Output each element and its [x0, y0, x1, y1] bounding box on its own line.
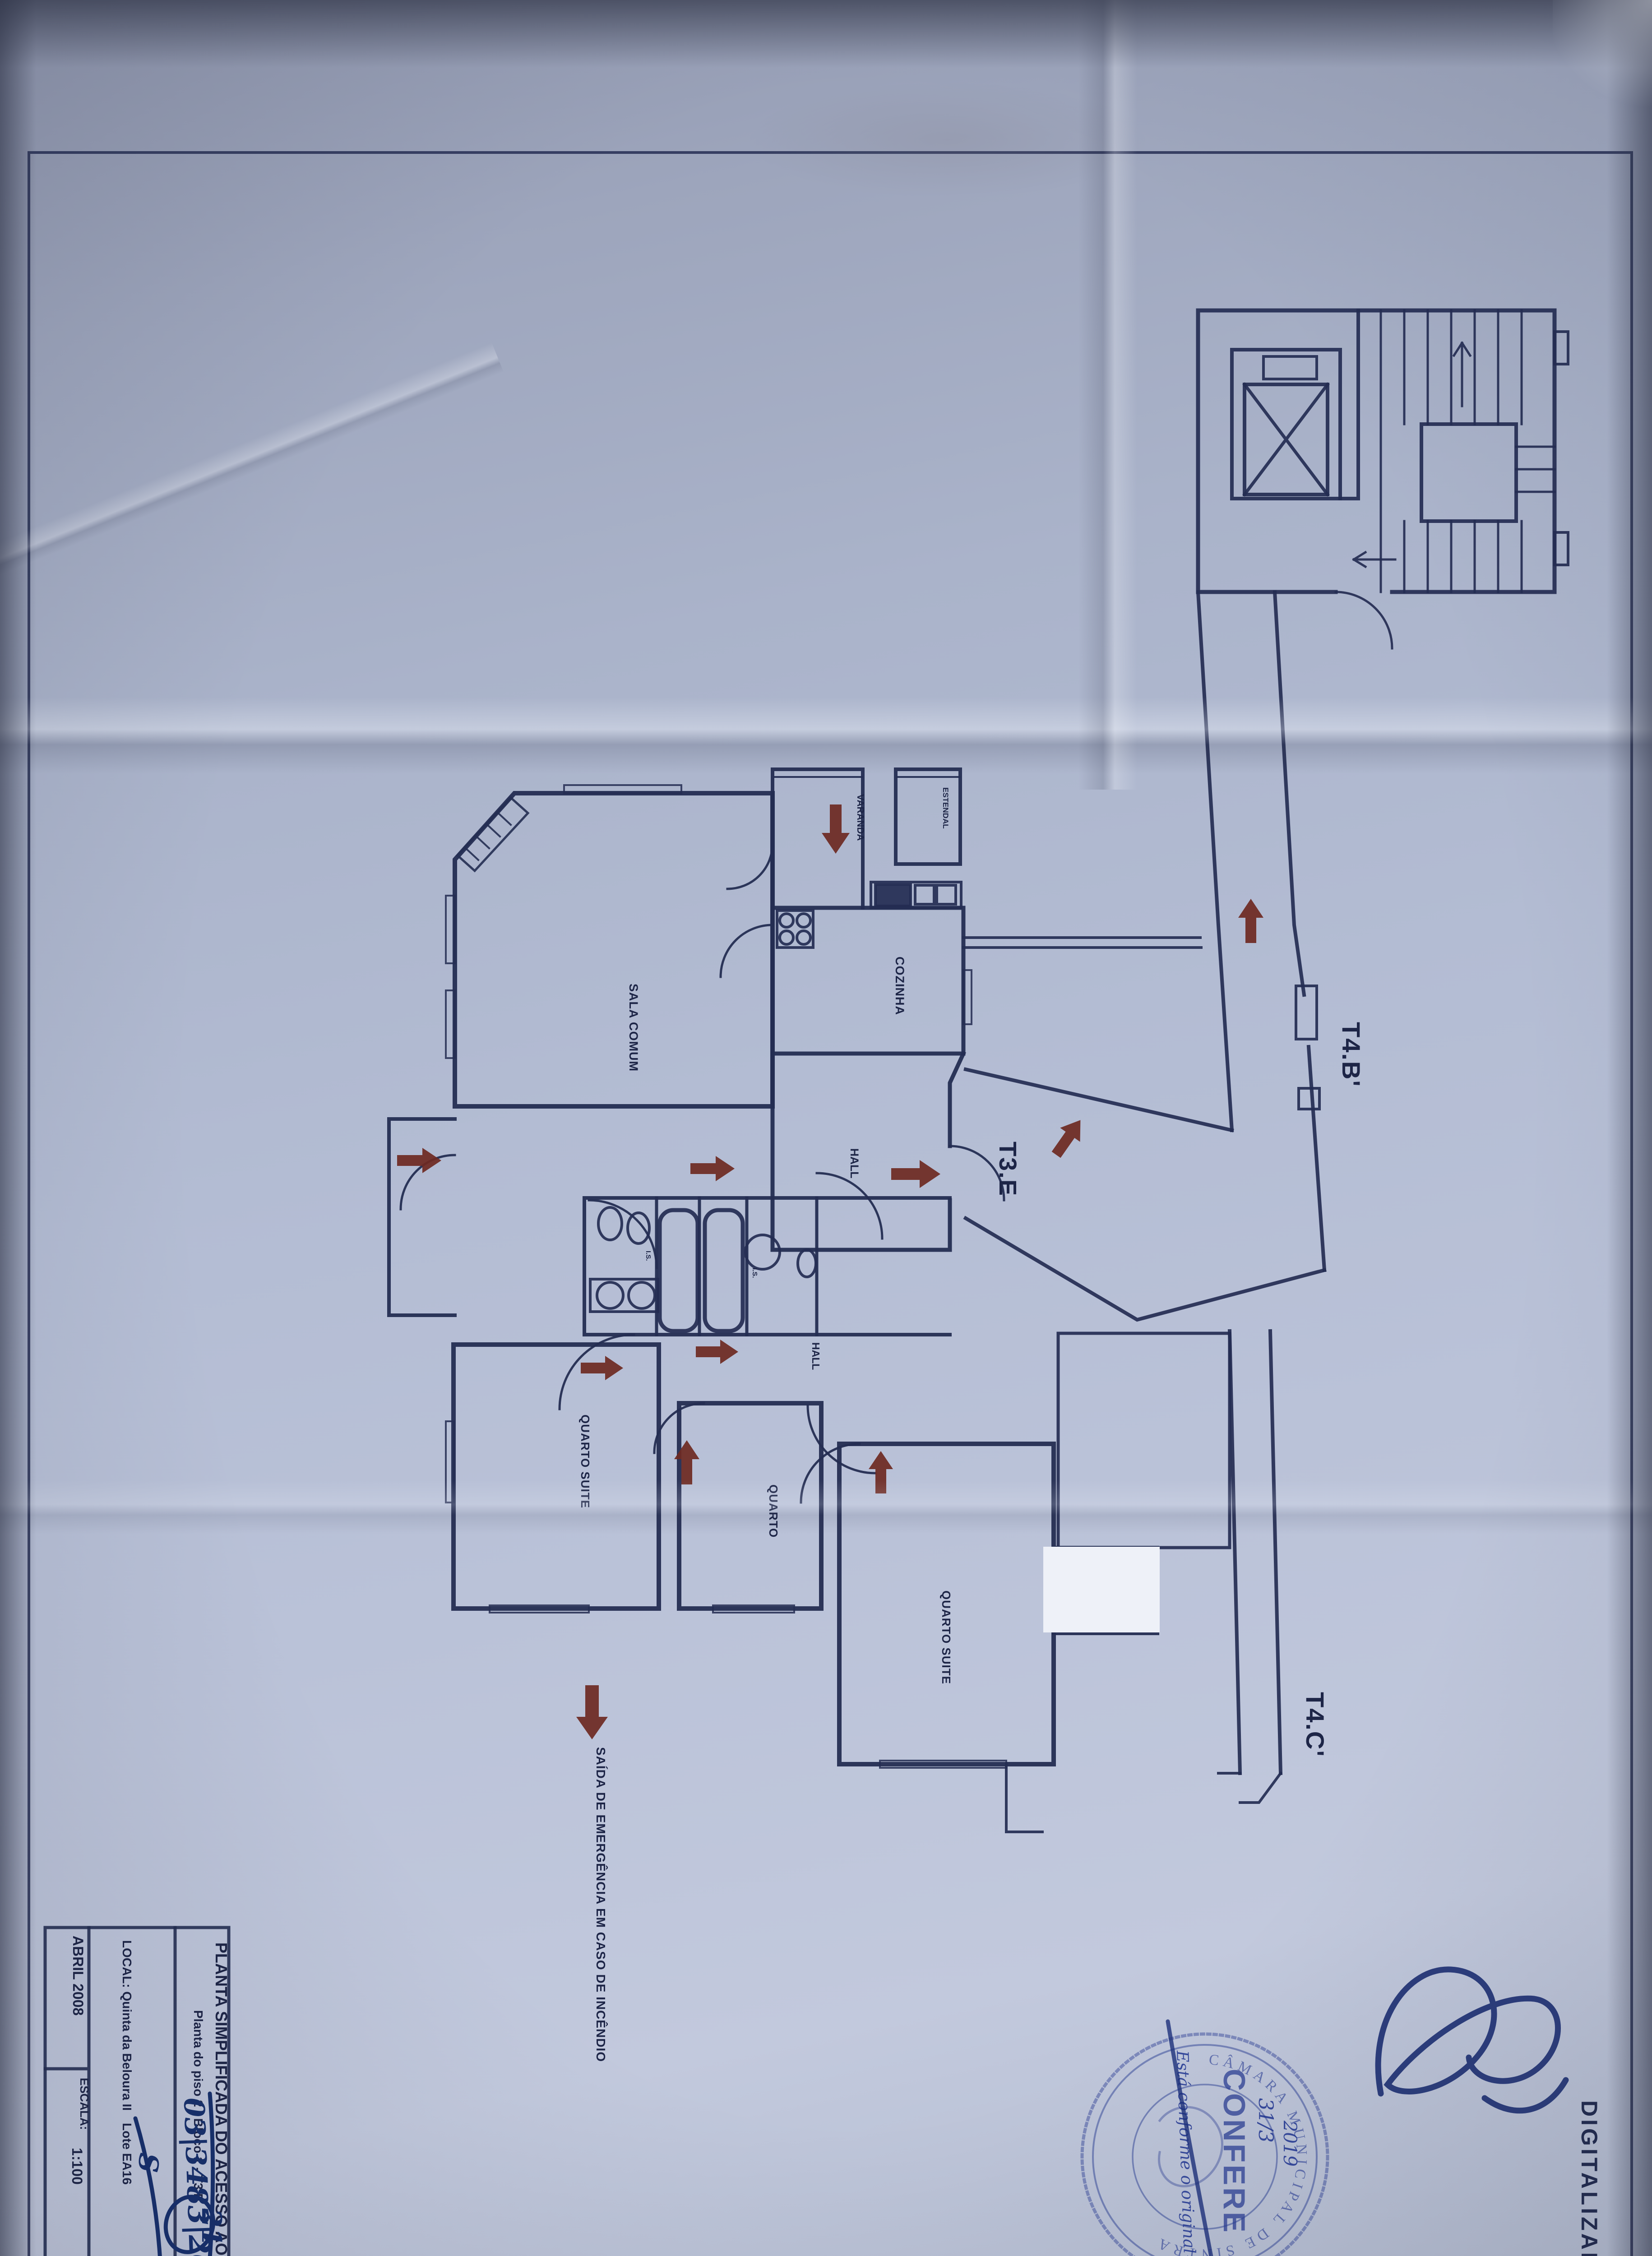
scanned-floorplan-photo: SALA COMUM VARANDA ESTENDAL COZINHA HALL…: [0, 0, 1652, 2256]
photo-vignette: [0, 0, 1652, 2256]
